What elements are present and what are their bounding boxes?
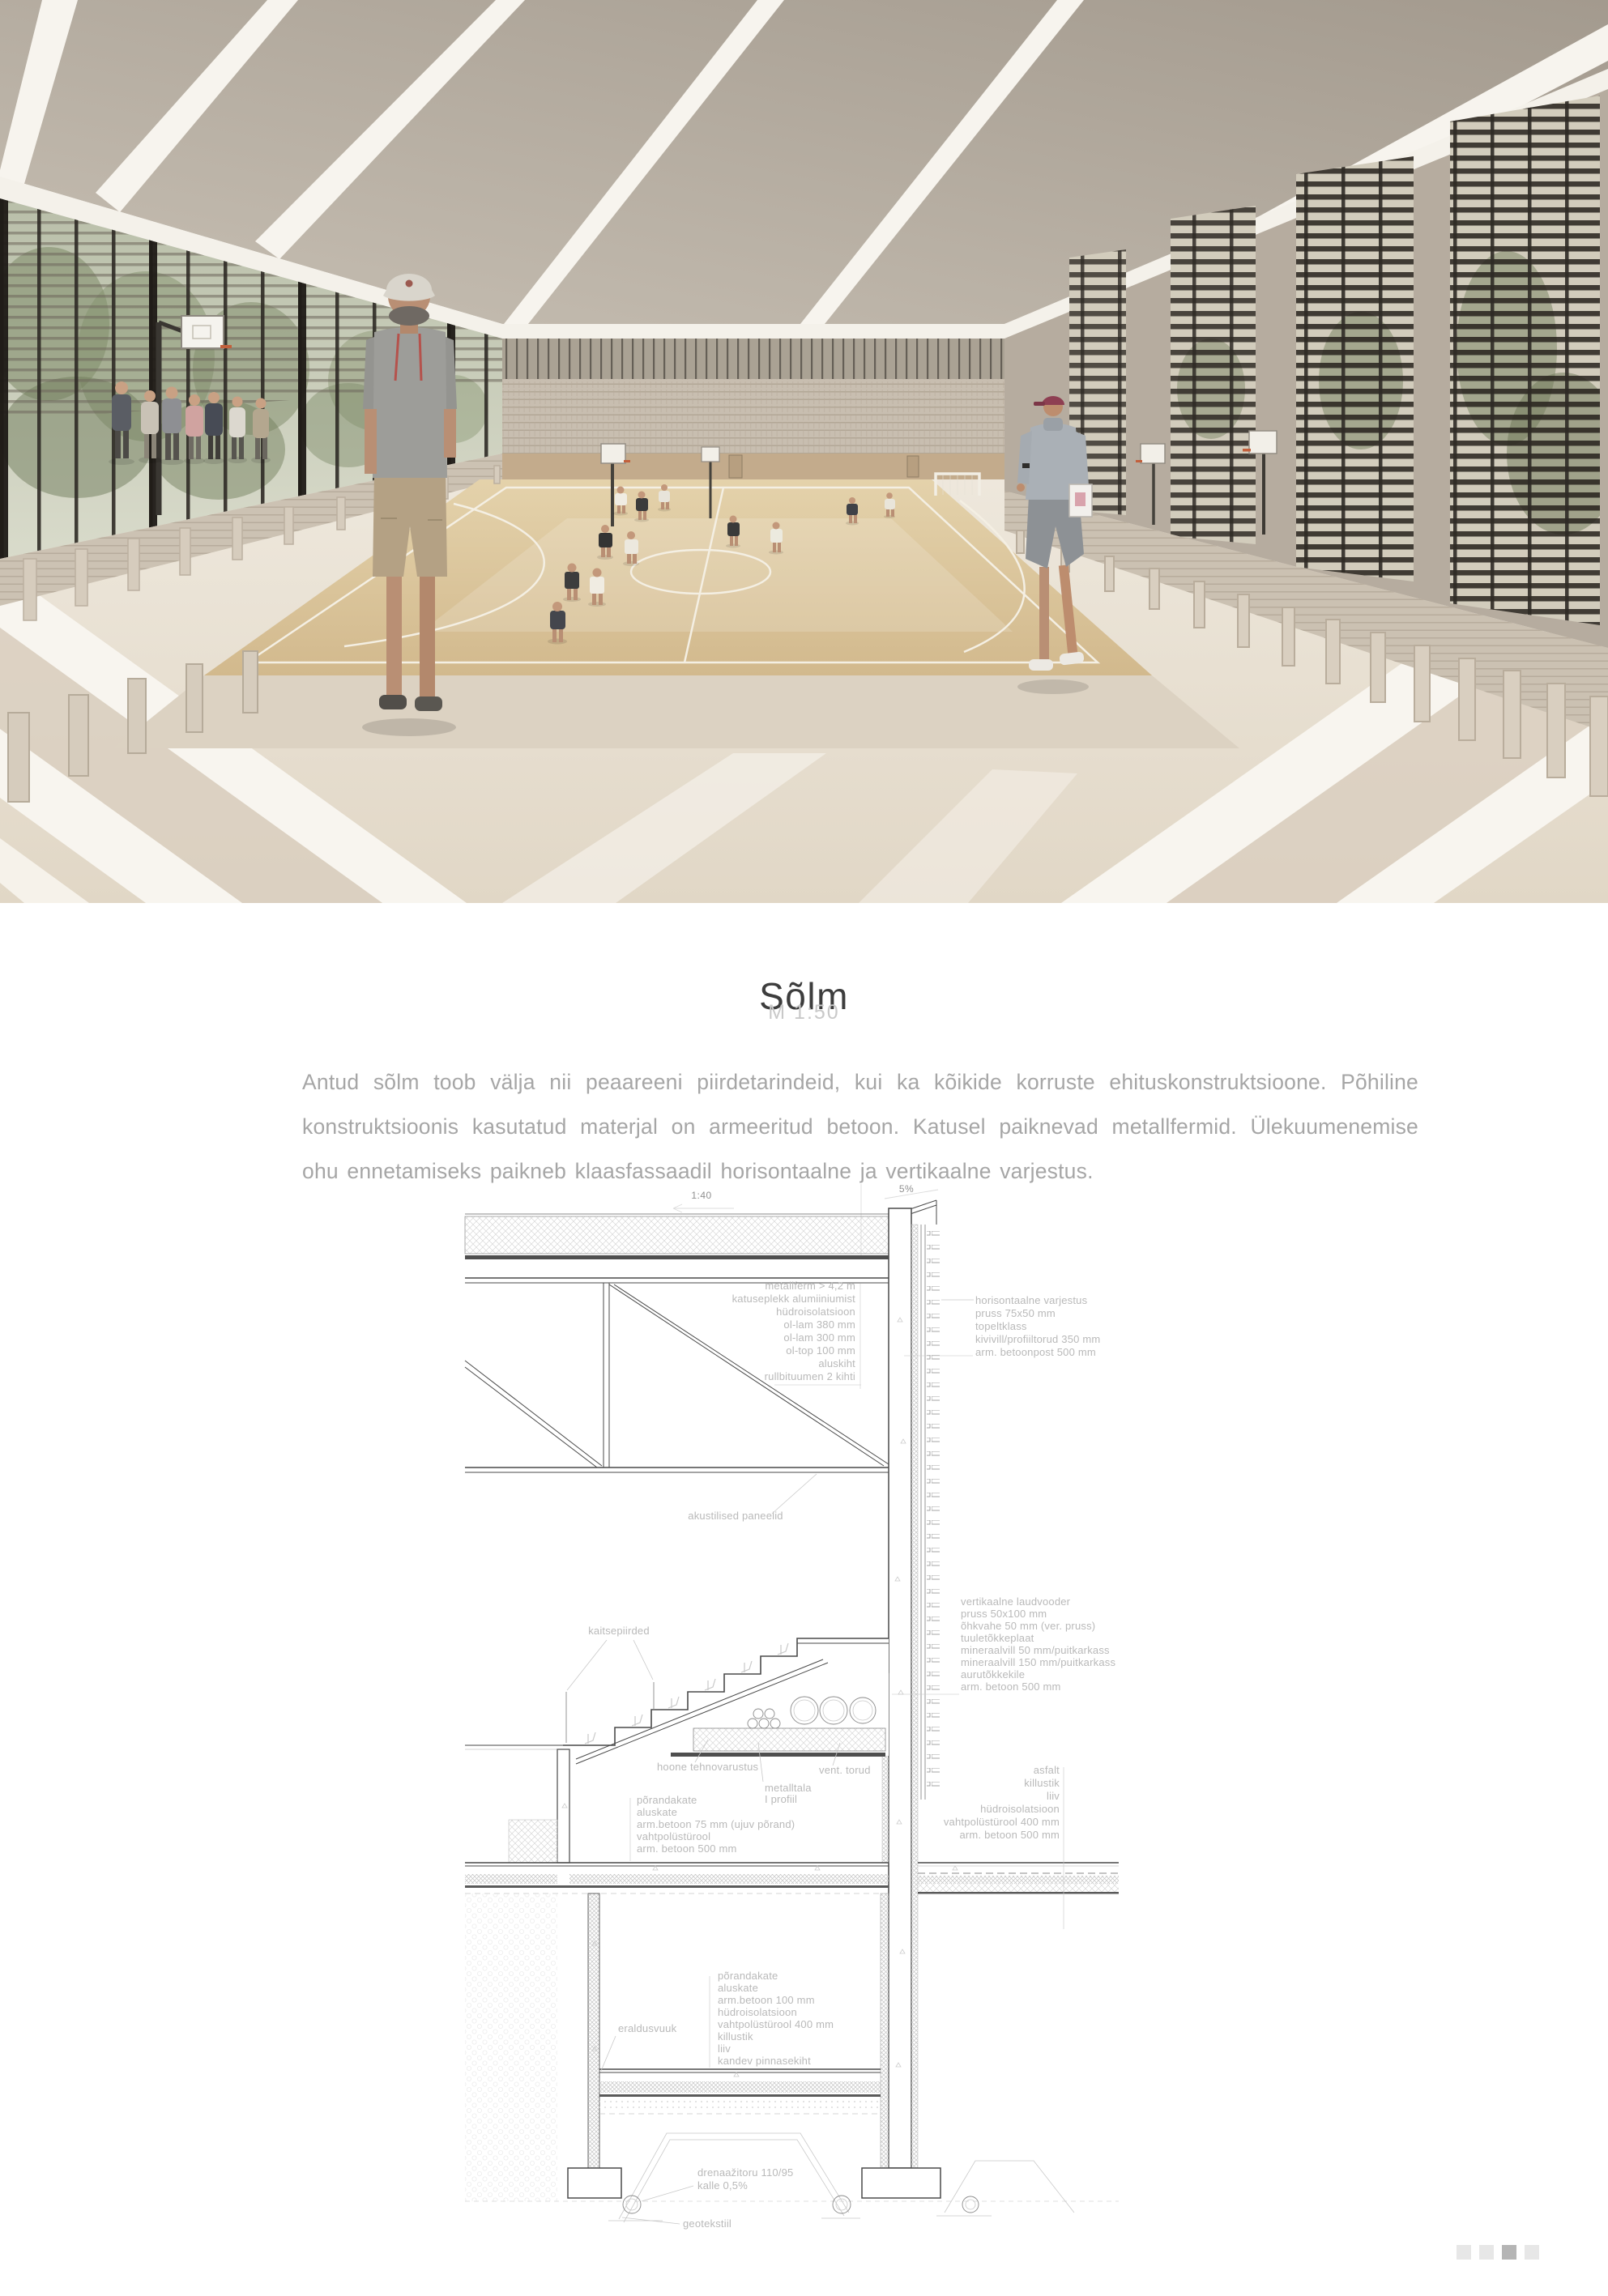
label: aluskate bbox=[637, 1806, 677, 1818]
label: asfalt bbox=[1034, 1764, 1060, 1776]
label: metalltala bbox=[765, 1782, 812, 1794]
label: vahtpolüstürool 400 mm bbox=[944, 1816, 1060, 1828]
label: kaitsepiirded bbox=[588, 1625, 650, 1637]
roof-slope-label: 1:40 bbox=[691, 1190, 711, 1201]
exterior-ground-label: asfalt killustik liiv hüdroisolatsioon v… bbox=[944, 1764, 1060, 1841]
label: arm.betoon 75 mm (ujuv põrand) bbox=[637, 1818, 795, 1830]
label: mineraalvill 50 mm/puitkarkass bbox=[961, 1644, 1110, 1656]
label: arm.betoon 100 mm bbox=[718, 1994, 815, 2006]
roof-assembly bbox=[465, 1200, 936, 1259]
basement-walls bbox=[465, 1893, 889, 2201]
drawing-scale: M 1:50 bbox=[0, 1001, 1608, 1024]
label: vahtpolüstürool bbox=[637, 1830, 710, 1842]
label: arm. betoon 500 mm bbox=[637, 1842, 737, 1855]
label: aluskiht bbox=[818, 1357, 855, 1370]
label: põrandakate bbox=[637, 1794, 697, 1806]
facade-shading bbox=[921, 1225, 940, 1800]
label: aluskate bbox=[718, 1982, 758, 1994]
door bbox=[729, 455, 742, 478]
page-dot-3-active[interactable] bbox=[1502, 2245, 1516, 2260]
wall-layers-label: vertikaalne laudvooder pruss 50x100 mm õ… bbox=[892, 1595, 1115, 1694]
label: topeltklass bbox=[975, 1320, 1027, 1332]
label: geotekstiil bbox=[683, 2217, 731, 2230]
label: killustik bbox=[1024, 1777, 1060, 1789]
label: ol-lam 380 mm bbox=[783, 1318, 855, 1331]
hero-render bbox=[0, 0, 1608, 903]
page-dot-1[interactable] bbox=[1457, 2245, 1471, 2260]
label: aurutõkkekile bbox=[961, 1668, 1025, 1680]
label: hüdroisolatsioon bbox=[718, 2006, 797, 2018]
label: kivivill/profiiltorud 350 mm bbox=[975, 1333, 1100, 1345]
expansion-joint-label: eraldusvuuk bbox=[601, 2022, 677, 2071]
label: mineraalvill 150 mm/puitkarkass bbox=[961, 1656, 1115, 1668]
label: akustilised paneelid bbox=[688, 1510, 783, 1522]
label: põrandakate bbox=[718, 1970, 778, 1982]
page-dot-4[interactable] bbox=[1525, 2245, 1539, 2260]
section-drawing: 1:40 5% bbox=[450, 1176, 1131, 2265]
label: killustik bbox=[718, 2030, 753, 2043]
label: liiv bbox=[718, 2043, 731, 2055]
label: arm. betoon 500 mm bbox=[961, 1680, 1061, 1693]
acoustic-label: akustilised paneelid bbox=[688, 1474, 817, 1522]
label: pruss 75x50 mm bbox=[975, 1307, 1056, 1319]
parapet-slope-label: 5% bbox=[899, 1183, 914, 1195]
label: kalle 0,5% bbox=[697, 2179, 748, 2192]
label: arm. betoon 500 mm bbox=[959, 1829, 1060, 1841]
label: pruss 50x100 mm bbox=[961, 1608, 1047, 1620]
label: vahtpolüstürool 400 mm bbox=[718, 2018, 834, 2030]
label: ol-lam 300 mm bbox=[783, 1331, 855, 1344]
basement-floor-label: põrandakate aluskate arm.betoon 100 mm h… bbox=[710, 1970, 834, 2068]
far-seating-tiers bbox=[502, 379, 1004, 454]
label: liiv bbox=[1047, 1790, 1060, 1802]
label: hüdroisolatsioon bbox=[776, 1306, 855, 1318]
far-clerestory bbox=[502, 339, 1004, 379]
label: katuseplekk alumiiniumist bbox=[732, 1293, 856, 1305]
geotextile-label: geotekstiil bbox=[622, 2217, 731, 2230]
intro-paragraph: Antud sõlm toob välja nii peaareeni piir… bbox=[302, 1060, 1418, 1194]
label: metallferm > 4,2 m bbox=[765, 1280, 855, 1292]
label: vent. torud bbox=[819, 1764, 871, 1776]
label: I profiil bbox=[765, 1793, 797, 1805]
label: arm. betoonpost 500 mm bbox=[975, 1346, 1096, 1358]
railings-label: kaitsepiirded bbox=[567, 1625, 653, 1690]
label: vertikaalne laudvooder bbox=[961, 1595, 1071, 1608]
page-indicator bbox=[1457, 2245, 1539, 2260]
label: rullbituumen 2 kihti bbox=[765, 1370, 855, 1382]
door bbox=[907, 456, 919, 477]
watch bbox=[1022, 463, 1030, 468]
roof-layers-label: metallferm > 4,2 m katuseplekk alumiiniu… bbox=[732, 1280, 856, 1382]
label: kandev pinnasekiht bbox=[718, 2055, 811, 2067]
label: eraldusvuuk bbox=[618, 2022, 677, 2034]
label: hoone tehnovarustus bbox=[657, 1761, 759, 1773]
drainage-label: drenaažitoru 110/95 kalle 0,5% bbox=[642, 2166, 793, 2201]
label: hüdroisolatsioon bbox=[980, 1803, 1060, 1815]
court-back-wall bbox=[502, 454, 1004, 479]
label: ol-top 100 mm bbox=[786, 1344, 855, 1357]
label: õhkvahe 50 mm (ver. pruss) bbox=[961, 1620, 1095, 1632]
label: horisontaalne varjestus bbox=[975, 1294, 1088, 1306]
portfolio-page: Sõlm M 1:50 Antud sõlm toob välja nii pe… bbox=[0, 0, 1608, 2296]
page-dot-2[interactable] bbox=[1479, 2245, 1494, 2260]
label: drenaažitoru 110/95 bbox=[697, 2166, 793, 2179]
label: tuuletõkkeplaat bbox=[961, 1632, 1034, 1644]
